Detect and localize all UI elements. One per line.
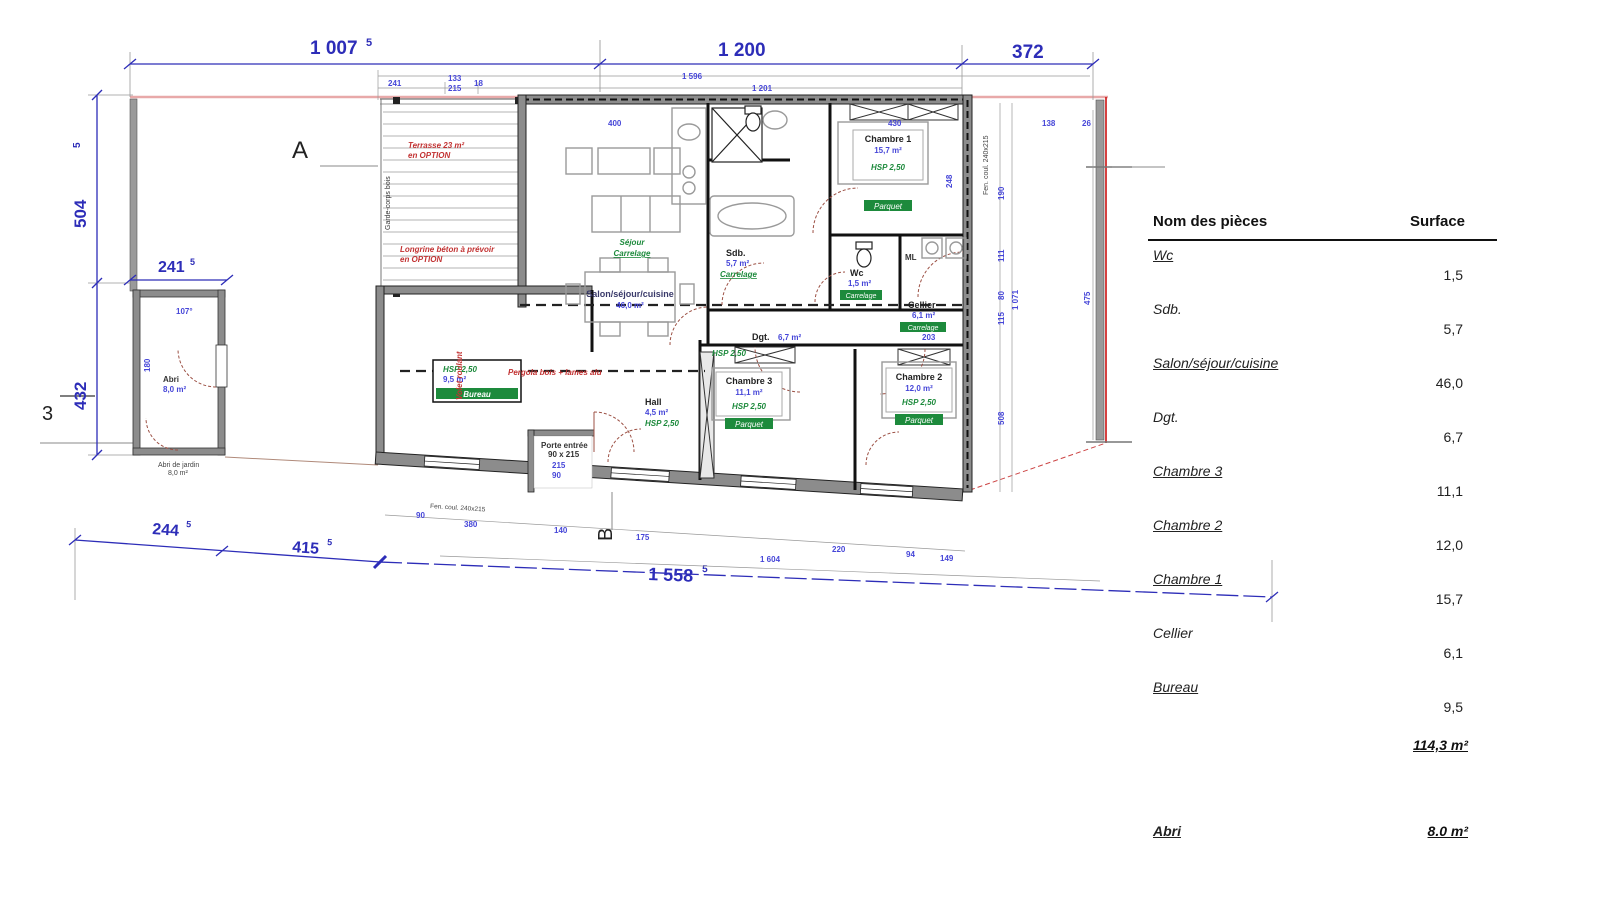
pergola-note: Pergola bois + lames alu [508, 368, 602, 377]
dim-label: 140 [554, 526, 568, 535]
ml-note: ML [905, 253, 917, 262]
room-floor: Carrelage [846, 293, 877, 300]
room-name: Sdb. [726, 248, 746, 258]
bathtub [710, 196, 794, 236]
table-row-value: 1,5 [1378, 267, 1463, 283]
room-area: 6,7 m² [778, 333, 801, 342]
table-row-name: Chambre 2 [1153, 517, 1222, 533]
room-hall: Hall 4,5 m² HSP 2,50 [645, 397, 679, 428]
entry-door-note: Porte entrée [541, 441, 588, 450]
washbasin [763, 111, 787, 129]
table-row-value: 9,5 [1378, 699, 1463, 715]
room-name: Chambre 3 [726, 376, 773, 386]
dim-label: 430 [888, 119, 902, 128]
entry-door-size: 90 x 215 [548, 450, 580, 459]
table-abri-label: Abri [1153, 823, 1181, 839]
table-row-value: 15,7 [1378, 591, 1463, 607]
room-area: 12,0 m² [905, 384, 933, 393]
room-floor: Carrelage [614, 249, 651, 258]
dim-label: 175 [636, 533, 650, 542]
dim-label: 26 [1082, 119, 1091, 128]
room-area: 6,1 m² [912, 311, 935, 320]
room-sdb: Sdb. 5,7 m² Carrelage [720, 248, 757, 279]
dimension-lines-top [124, 40, 1099, 100]
room-hsp: HSP 2,50 [732, 402, 766, 411]
terrace-edge-note: Garde-corps bois [385, 176, 392, 230]
dim-label: 94 [906, 550, 915, 559]
room-area: 1,5 m² [848, 279, 871, 288]
dim-label: 190 [997, 186, 1006, 200]
dim-label: 475 [1083, 291, 1092, 305]
room-floor: Parquet [874, 202, 903, 211]
room-name: Séjour [620, 238, 646, 247]
table-row-value: 5,7 [1378, 321, 1463, 337]
dim-label: 203 [922, 333, 936, 342]
dim-label: 241 [388, 79, 402, 88]
room-name: Wc [850, 268, 864, 278]
dim-label: 215 [552, 461, 566, 470]
dim-label: 115 [997, 312, 1006, 325]
dim-sup: 5 [72, 142, 83, 148]
room-floor: Parquet [905, 416, 934, 425]
room-name-full: Salon/séjour/cuisine [586, 289, 674, 299]
section-marker-b: B [595, 528, 617, 541]
dim-label: 133 [448, 74, 462, 83]
dim-label: 1 201 [752, 84, 773, 93]
room-area: 11,1 m² [735, 388, 762, 397]
dim-sup: 5 [327, 537, 333, 547]
kitchen-counter [672, 108, 706, 204]
dim-label: 80 [997, 291, 1006, 300]
dim-sup: 5 [186, 519, 192, 529]
dim-label: 1 007 [310, 38, 358, 59]
dim-label: 400 [608, 119, 622, 128]
dim-label: 220 [832, 545, 846, 554]
room-name: Dgt. [752, 332, 770, 342]
fence-band-left [130, 99, 137, 291]
table-row-name: Sdb. [1153, 301, 1182, 317]
room-wc: Wc 1,5 m² Carrelage [840, 268, 882, 300]
table-row-name: Bureau [1153, 679, 1198, 695]
table-row-value: 11,1 [1378, 483, 1463, 499]
fence-band-right [1096, 100, 1104, 440]
table-row-value: 46,0 [1378, 375, 1463, 391]
dim-label: 248 [945, 174, 954, 188]
table-row-name: Wc [1153, 247, 1173, 263]
table-row-name: Cellier [1153, 625, 1193, 641]
room-area: 4,5 m² [645, 408, 668, 417]
boundary-line-diagonal [970, 443, 1106, 490]
dim-label: 380 [464, 520, 478, 529]
room-hsp: HSP 2,50 [871, 163, 905, 172]
dim-label: 1 200 [718, 40, 766, 61]
door-swing-arc [178, 349, 216, 387]
room-area-abri: 8,0 m² [163, 385, 186, 394]
table-header-surface: Surface [1410, 213, 1465, 230]
dim-label: 432 [71, 382, 90, 410]
window-note-right: Fen. coul. 240x215 [983, 135, 990, 195]
dim-label: 244 [152, 521, 180, 540]
room-name: Chambre 1 [865, 134, 912, 144]
dim-label: 1 596 [682, 72, 703, 81]
dim-label: 1 558 [648, 564, 694, 586]
abri-caption: Abri de jardin [158, 462, 199, 469]
door-swing-arc [146, 418, 178, 450]
dim-label: 90 [552, 471, 561, 480]
table-row-value: 6,7 [1378, 429, 1463, 445]
table-row-name: Salon/séjour/cuisine [1153, 355, 1278, 371]
room-chambre2: Chambre 2 12,0 m² HSP 2,50 Parquet [886, 368, 952, 425]
room-floor: Parquet [735, 420, 764, 429]
room-area: 5,7 m² [726, 259, 749, 268]
room-area: 15,7 m² [874, 146, 902, 155]
terrace-note-2: Longrine béton à prévoir [400, 245, 495, 254]
room-chambre3: Chambre 3 11,1 m² HSP 2,50 Parquet [716, 372, 782, 429]
room-surface-table: Nom des pièces Surface Wc 1,5 Sdb. 5,7 S… [1148, 205, 1500, 865]
dim-label: 508 [997, 411, 1006, 425]
room-name: Cellier [908, 300, 936, 310]
table-total-surface: 114,3 m² [1338, 737, 1468, 753]
table-header-rule [1148, 239, 1497, 241]
dim-label: 149 [940, 554, 954, 563]
window-note: Fen. coul. 240x215 [430, 503, 486, 513]
volet-note: Volet roulant [455, 351, 464, 400]
terrace-note-1b: en OPTION [408, 151, 450, 160]
room-hsp: HSP 2,50 [712, 349, 746, 358]
dim-label: 107° [176, 307, 193, 316]
room-hsp: HSP 2,50 [902, 398, 936, 407]
dim-label: 138 [1042, 119, 1056, 128]
room-chambre1: Chambre 1 15,7 m² HSP 2,50 Parquet [853, 130, 923, 211]
terrace-note-2b: en OPTION [400, 255, 442, 264]
terrace-note-1: Terrasse 23 m² [408, 141, 465, 150]
room-label-abri: Abri [163, 375, 179, 384]
table-row-value: 6,1 [1378, 645, 1463, 661]
table-row-name: Chambre 1 [1153, 571, 1222, 587]
dim-label: 415 [292, 539, 320, 558]
dim-label: 1 604 [760, 555, 781, 564]
dim-sup: 5 [366, 37, 372, 49]
table-row-name: Chambre 3 [1153, 463, 1222, 479]
dim-label: 18 [474, 79, 483, 88]
floorplan-sheet: A 3 B 1 007 5 1 200 372 504 5 432 241 5 [0, 0, 1600, 900]
terrace [380, 97, 523, 300]
room-name: Chambre 2 [896, 372, 943, 382]
dim-label: 111 [997, 249, 1006, 262]
room-bureau: HSP 2,50 9,5 m² Bureau [433, 360, 521, 402]
dim-label: 180 [143, 358, 152, 372]
table-abri-value: 8.0 m² [1338, 823, 1468, 839]
table-row-name: Dgt. [1153, 409, 1179, 425]
section-marker-a: A [292, 137, 308, 164]
dim-label: 372 [1012, 42, 1044, 63]
room-name: Hall [645, 397, 662, 407]
room-floor: Carrelage [908, 325, 939, 332]
room-sejour: Séjour Carrelage Salon/séjour/cuisine 46… [586, 238, 674, 310]
section-marker-3: 3 [42, 403, 53, 425]
room-floor: Carrelage [720, 270, 757, 279]
room-area: 46,0 m² [616, 301, 644, 310]
room-hsp: HSP 2,50 [645, 419, 679, 428]
room-name: Bureau [463, 390, 491, 399]
table-row-value: 12,0 [1378, 537, 1463, 553]
dim-label: 504 [71, 199, 90, 228]
dim-label: 90 [416, 511, 425, 520]
abri-door-opening [216, 345, 227, 387]
dim-label: 1 071 [1011, 289, 1020, 310]
dim-label: 241 [158, 259, 185, 276]
abri-caption2: 8,0 m² [168, 470, 189, 477]
dim-label: 215 [448, 84, 462, 93]
dim-sup: 5 [190, 257, 195, 267]
table-header-name: Nom des pièces [1153, 213, 1267, 230]
